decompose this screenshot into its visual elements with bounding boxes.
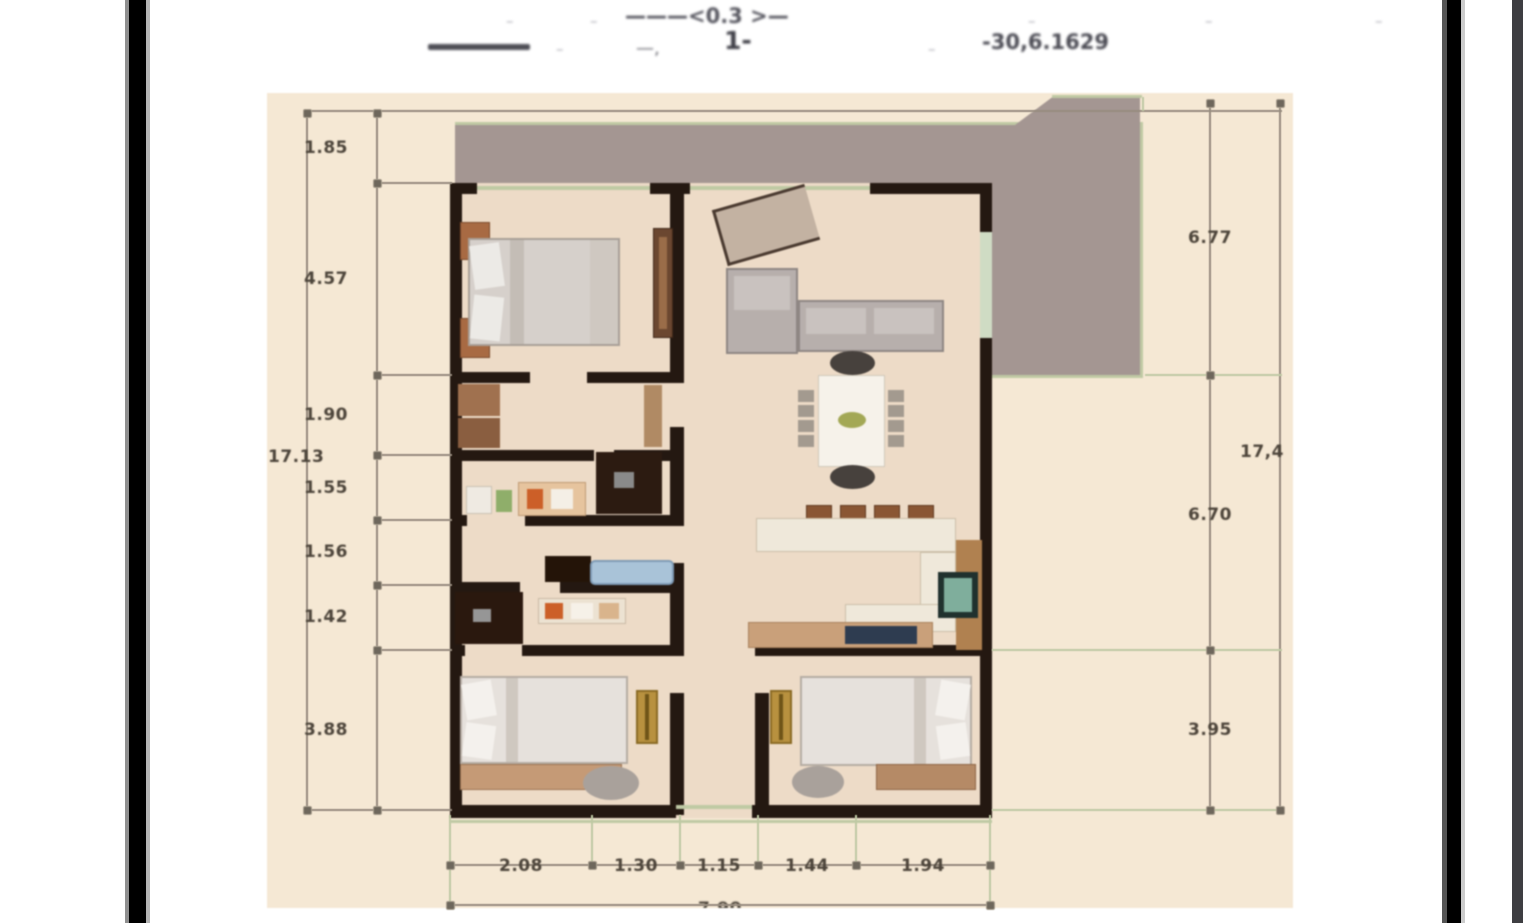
dimension-marker (303, 109, 312, 118)
window-frame-bar-right (1442, 0, 1465, 923)
dimension-label: 1.85 (288, 138, 348, 158)
dimension-label: 1.30 (606, 856, 666, 876)
dimension-marker (1276, 99, 1285, 108)
dimension-label-left-total: 17.13 (268, 447, 332, 467)
dimension-label: 1.56 (288, 542, 348, 562)
dimension-layer: 1.85 4.57 1.90 1.55 1.56 1.42 3.88 17.13… (0, 0, 1523, 923)
dimension-marker (588, 861, 597, 870)
dimension-marker (373, 371, 382, 380)
dimension-marker (1206, 371, 1215, 380)
extension-line (591, 815, 593, 867)
extension-line (855, 815, 857, 867)
dimension-marker (1206, 99, 1215, 108)
dimension-label: 6.70 (1182, 505, 1238, 525)
dimension-line-top (307, 110, 1282, 112)
dimension-marker (373, 806, 382, 815)
extension-line (679, 815, 681, 867)
dimension-marker (373, 451, 382, 460)
right-edge-strip (1512, 0, 1523, 923)
dimension-label: 1.15 (689, 856, 749, 876)
dimension-label: 1.90 (288, 405, 348, 425)
dimension-label: 1.42 (288, 607, 348, 627)
dimension-marker (373, 516, 382, 525)
dimension-line-left-chain (376, 113, 378, 810)
dimension-label: 1.94 (893, 856, 953, 876)
dimension-label: 1.55 (288, 478, 348, 498)
dimension-marker (754, 861, 763, 870)
dimension-line-bottom-total (450, 904, 990, 906)
extension-line (377, 649, 452, 651)
dimension-marker (373, 581, 382, 590)
dimension-line-right-chain (1209, 103, 1211, 810)
dimension-marker (373, 646, 382, 655)
extension-line (377, 454, 452, 456)
dimension-marker (446, 901, 455, 910)
dimension-label-right-total: 17,4 (1240, 442, 1296, 462)
dimension-label: 1.44 (777, 856, 837, 876)
dimension-marker (1276, 806, 1285, 815)
screenshot-root: – – ———<0.3 >— – – – – —, 1- – -30,6.162… (0, 0, 1523, 923)
extension-line (757, 815, 759, 867)
window-frame-bar-left (125, 0, 150, 923)
extension-line (377, 182, 452, 184)
dimension-marker (1206, 646, 1215, 655)
dimension-marker (303, 806, 312, 815)
dimension-marker (676, 861, 685, 870)
extension-line (992, 649, 1282, 651)
dimension-label: 3.95 (1182, 720, 1238, 740)
dimension-marker (852, 861, 861, 870)
dimension-marker (446, 861, 455, 870)
extension-line (377, 519, 452, 521)
extension-line (992, 809, 1282, 811)
dimension-marker (1206, 806, 1215, 815)
dimension-label: 4.57 (288, 269, 348, 289)
dimension-label: 2.08 (491, 856, 551, 876)
dimension-label: 6.77 (1182, 228, 1238, 248)
extension-line (377, 584, 452, 586)
dimension-marker (373, 109, 382, 118)
dimension-marker (373, 179, 382, 188)
extension-line (1142, 97, 1144, 111)
dimension-marker (986, 901, 995, 910)
extension-line (377, 374, 452, 376)
dimension-marker (986, 861, 995, 870)
dimension-label: 3.88 (288, 720, 348, 740)
